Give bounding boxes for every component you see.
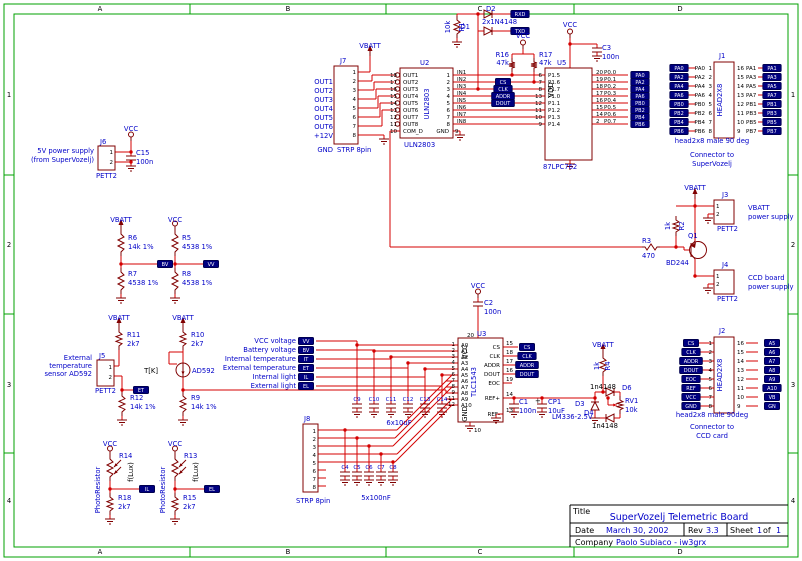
schematic-label: 3 — [709, 84, 713, 90]
schematic-label: EOC — [488, 381, 500, 387]
junction-dot — [173, 487, 176, 490]
schematic-label: CCD board — [748, 274, 785, 282]
net-label-text: PA2 — [674, 75, 683, 81]
schematic-label: CCD card — [696, 432, 728, 440]
schematic-label: 13 — [390, 108, 397, 114]
wire — [395, 405, 452, 462]
junction-dot — [372, 349, 375, 352]
schematic-label: U3 — [477, 330, 486, 338]
schematic-label: 6 — [353, 115, 357, 121]
schematic-label: 2k7 — [191, 340, 204, 348]
schematic-label: B — [286, 5, 291, 13]
schematic-label: ULN2803 — [404, 141, 435, 149]
schematic-label: 15 — [737, 350, 744, 356]
net-label-text: GN — [768, 404, 776, 410]
schematic-label: 15 — [506, 341, 513, 347]
schematic-label: 13 — [506, 408, 513, 414]
net-label-text: PA4 — [674, 84, 683, 90]
schematic-label: R4 — [604, 361, 612, 370]
schematic-label: 12 — [390, 115, 397, 121]
resistor — [172, 268, 178, 294]
schematic-label: 6 — [539, 73, 543, 79]
schematic-label: VBATT — [172, 314, 194, 322]
schematic-label: 8 — [447, 122, 451, 128]
schematic-label: C — [478, 548, 483, 556]
schematic-label: 15 — [596, 105, 603, 111]
junction-dot — [129, 150, 132, 153]
schematic-label: C13 — [420, 397, 431, 403]
schematic-label: PA0 — [695, 66, 706, 72]
junction-dot — [120, 388, 123, 391]
schematic-label: 17 — [390, 80, 397, 86]
schematic-label: IN2 — [457, 77, 466, 83]
net-label-text: A10 — [767, 386, 777, 392]
sheet-total: 1 — [776, 526, 781, 535]
schematic-label: OUT6 — [314, 123, 333, 131]
schematic-label: C5 — [353, 465, 361, 471]
schematic-label: U2 — [420, 59, 429, 67]
schematic-label: VBATT — [592, 341, 614, 349]
schematic-label: P0.6 — [604, 112, 617, 118]
schematic-label: 17 — [506, 359, 513, 365]
schematic-label: J3 — [721, 191, 728, 199]
schematic-label: 1 — [709, 341, 713, 347]
schematic-label: + — [535, 397, 541, 405]
schematic-label: PETT2 — [96, 172, 117, 180]
schematic-label: 100n — [136, 158, 153, 166]
schematic-label: 1k — [664, 222, 672, 230]
net-label-text: DOUT — [496, 101, 511, 107]
wire — [393, 387, 452, 446]
resistor — [617, 396, 623, 414]
schematic-label: D4 — [584, 409, 594, 417]
schematic-label: 6 — [709, 111, 713, 117]
schematic-label: 10k — [444, 21, 452, 34]
diode-d4 — [606, 414, 614, 422]
schematic-label: External light — [251, 382, 297, 390]
schematic-label: P0.4 — [604, 98, 617, 104]
schematic-label: J6 — [99, 138, 106, 146]
date-label: Date — [575, 526, 594, 535]
schematic-label: C6 — [365, 465, 373, 471]
schematic-canvas: Title SuperVozelj Telemetric Board Date … — [0, 0, 802, 561]
net-label-text: CS — [688, 341, 695, 347]
schematic-label: VCC — [168, 440, 182, 448]
schematic-label: PB1 — [746, 102, 757, 108]
schematic-label: R1 — [458, 22, 466, 31]
schematic-label: CS — [493, 345, 501, 351]
junction-dot — [173, 262, 176, 265]
net-label-text: ADDR — [684, 359, 699, 365]
schematic-label: f(Lux) — [127, 462, 135, 482]
schematic-label: 6 — [447, 108, 451, 114]
net-label-text: PB5 — [767, 120, 777, 126]
schematic-label: P1.4 — [548, 122, 561, 128]
schematic-label: PA7 — [746, 93, 757, 99]
schematic-label: OUT3 — [314, 96, 333, 104]
schematic-label: A — [98, 5, 103, 13]
net-label-text: VV — [208, 262, 215, 268]
net-label-text: PB4 — [674, 120, 684, 126]
schematic-label: 10 — [737, 120, 744, 126]
schematic-label: 3 — [7, 381, 11, 389]
schematic-label: J8 — [303, 415, 310, 423]
schematic-label: 4 — [447, 94, 451, 100]
schematic-label: 3 — [791, 381, 795, 389]
title-label: Title — [572, 507, 590, 516]
schematic-label: 1 — [709, 66, 713, 72]
schematic-label: 19 — [506, 377, 513, 383]
schematic-label: PA1 — [746, 66, 756, 72]
junction-dot — [119, 262, 122, 265]
net-label-text: PA5 — [767, 84, 776, 90]
net-label-text: PA3 — [767, 75, 776, 81]
net-label-text: A8 — [769, 368, 776, 374]
schematic-label: A — [98, 548, 103, 556]
schematic-label: U5 — [557, 59, 566, 67]
schematic-label: R15 — [183, 494, 196, 502]
junction-dot — [129, 160, 132, 163]
schematic-label: 2 — [716, 212, 720, 218]
schematic-label: 4538 1% — [182, 279, 213, 287]
schematic-label: 18 — [596, 84, 603, 90]
arrow-head — [181, 371, 184, 375]
schematic-label: VBATT — [110, 216, 132, 224]
schematic-label: R9 — [191, 394, 200, 402]
schematic-label: J5 — [98, 352, 105, 360]
schematic-label: PA6 — [695, 93, 706, 99]
schematic-label: 1 — [716, 274, 720, 280]
schematic-label: CLK — [489, 354, 500, 360]
junction-dot — [568, 42, 571, 45]
schematic-label: 10k — [625, 406, 638, 414]
schematic-label: f(Lux) — [192, 462, 200, 482]
schematic-label: 20 — [596, 70, 603, 76]
company-label: Company — [575, 538, 613, 547]
sheet-number: 1 — [757, 526, 762, 535]
junction-dot — [391, 460, 394, 463]
junction-dot — [440, 373, 443, 376]
schematic-label: 4 — [313, 453, 317, 459]
schematic-label: OUT6 — [403, 108, 419, 114]
resistor — [172, 493, 178, 515]
schematic-label: Internal light — [253, 373, 297, 381]
schematic-label: C14 — [437, 397, 448, 403]
schematic-label: (from SuperVozelj) — [31, 156, 94, 164]
schematic-label: PETT2 — [717, 225, 738, 233]
schematic-label: 14k 1% — [128, 243, 154, 251]
schematic-label: 11 — [737, 111, 744, 117]
schematic-label: VBATT — [748, 204, 770, 212]
net-label-text: A6 — [769, 350, 776, 356]
net-label-text: PA7 — [767, 93, 776, 99]
schematic-label: 20 — [467, 333, 474, 339]
schematic-label: 15 — [390, 94, 397, 100]
schematic-label: Internal temperature — [225, 355, 296, 363]
resistor — [172, 230, 178, 256]
company-value: Paolo Subiaco - iw3grx — [616, 538, 707, 547]
schematic-label: 16 — [506, 368, 513, 374]
schematic-label: power supply — [748, 283, 794, 291]
connector-j5 — [97, 360, 114, 386]
net-label-text: PB7 — [767, 129, 777, 135]
schematic-label: J7 — [339, 57, 346, 65]
schematic-label: 17 — [596, 91, 603, 97]
net-label-text: REF — [686, 386, 696, 392]
schematic-label: 5 — [709, 377, 713, 383]
schematic-label: PA3 — [746, 75, 757, 81]
schematic-label: CP1 — [548, 398, 561, 406]
schematic-label: 4 — [709, 368, 713, 374]
junction-dot — [108, 487, 111, 490]
net-label-text: PB6 — [635, 122, 645, 128]
schematic-label: 3 — [313, 445, 317, 451]
schematic-label: 8 — [313, 485, 317, 491]
schematic-label: B — [286, 548, 291, 556]
schematic-label: 9 — [737, 404, 741, 410]
schematic-label: 1n4148 — [592, 422, 618, 430]
schematic-label: OUT7 — [403, 115, 419, 121]
junction-dot — [693, 274, 696, 277]
schematic-label: PB3 — [746, 111, 757, 117]
title-block: Title SuperVozelj Telemetric Board Date … — [570, 505, 788, 547]
schematic-label: IN8 — [457, 119, 467, 125]
schematic-label: D — [677, 548, 682, 556]
schematic-label: R13 — [184, 452, 197, 460]
schematic-label: 14k 1% — [191, 403, 217, 411]
schematic-label: R16 — [496, 51, 509, 59]
schematic-label: 18 — [390, 73, 397, 79]
schematic-label: OUT8 — [403, 122, 419, 128]
schematic-label: 14k 1% — [130, 403, 156, 411]
schematic-label: OUT5 — [314, 114, 333, 122]
schematic-label: 4 — [7, 497, 11, 505]
schematic-label: VBATT — [684, 184, 706, 192]
schematic-label: 10 — [390, 129, 397, 135]
schematic-label: 3 — [447, 87, 451, 93]
schematic-label: R11 — [127, 331, 140, 339]
schematic-label: 13 — [737, 368, 744, 374]
schematic-label: 1 — [791, 91, 795, 99]
schematic-label: 4538 1% — [182, 243, 213, 251]
schematic-label: P1.6 — [548, 80, 561, 86]
schematic-label: IN7 — [457, 112, 467, 118]
schematic-label: C9 — [353, 397, 361, 403]
schematic-label: 3 — [709, 359, 713, 365]
schematic-label: 1 — [109, 365, 113, 371]
schematic-label: D6 — [622, 384, 632, 392]
net-label-text: ADDR — [520, 363, 535, 369]
schematic-label: 2 — [716, 282, 720, 288]
junction-dot — [476, 87, 479, 90]
schematic-label: power supply — [748, 213, 794, 221]
schematic-label: 5x100nF — [361, 494, 391, 502]
schematic-label: C2 — [484, 299, 493, 307]
schematic-label: P1.3 — [548, 115, 561, 121]
schematic-label: temperature — [49, 362, 92, 370]
junction-dot — [181, 388, 184, 391]
schematic-label: PETT2 — [717, 295, 738, 303]
schematic-label: +12V — [314, 132, 333, 140]
net-label-text: BV — [162, 262, 169, 268]
schematic-label: 2x1N4148 — [482, 18, 517, 26]
schematic-label: PB5 — [746, 120, 757, 126]
junction-dot — [510, 73, 513, 76]
schematic-label: 4 — [709, 93, 713, 99]
schematic-label: HEAD2X8 — [716, 359, 724, 392]
net-label-text: PB6 — [674, 129, 684, 135]
schematic-label: C11 — [386, 397, 397, 403]
schematic-label: 2 — [353, 79, 357, 85]
schematic-label: PB2 — [694, 111, 705, 117]
schematic-label: P0.7 — [604, 119, 617, 125]
schematic-label: D3 — [575, 400, 585, 408]
schematic-label: R2 — [678, 221, 686, 230]
vcc-symbol — [568, 29, 573, 34]
net-label-text: PA1 — [767, 66, 776, 72]
schematic-label: AD592 — [192, 367, 215, 375]
junction-dot — [389, 355, 392, 358]
schematic-label: PhotoResistor — [94, 467, 102, 514]
schematic-label: 7 — [539, 80, 543, 86]
schematic-label: 7 — [353, 124, 357, 130]
schematic-label: 6 — [313, 469, 317, 475]
schematic-label: C7 — [377, 465, 385, 471]
schematic-label: head2x8 male 90 deg — [675, 137, 749, 145]
schematic-label: PA2 — [695, 75, 705, 81]
schematic-label: 1 — [110, 150, 114, 156]
schematic-label: 1k — [593, 362, 601, 370]
schematic-label: 13 — [535, 94, 542, 100]
schematic-label: 19 — [596, 77, 603, 83]
schematic-label: External — [64, 354, 92, 362]
net-label-text: EOC — [686, 377, 697, 383]
schematic-label: 47k — [496, 59, 509, 67]
schematic-label: C3 — [602, 44, 611, 52]
schematic-label: OUT4 — [403, 94, 419, 100]
schematic-label: 1 — [353, 70, 357, 76]
junction-dot — [406, 361, 409, 364]
schematic-label: Connector to — [690, 423, 734, 431]
schematic-label: C15 — [136, 149, 149, 157]
schematic-label: 5 — [447, 101, 451, 107]
schematic-page: Title SuperVozelj Telemetric Board Date … — [0, 0, 802, 561]
schematic-label: 2 — [313, 437, 317, 443]
sheet-of-label: of — [763, 526, 771, 535]
net-label-text: CS — [524, 345, 531, 351]
net-label-text: EL — [303, 384, 309, 390]
schematic-label: ULN2803 — [423, 88, 431, 119]
schematic-label: IN1 — [457, 70, 466, 76]
net-label-text: CLK — [686, 350, 696, 356]
schematic-label: BD244 — [666, 259, 689, 267]
schematic-label: 8 — [539, 87, 543, 93]
schematic-label: OUT2 — [314, 87, 333, 95]
junction-dot — [379, 452, 382, 455]
schematic-label: J2 — [718, 327, 725, 335]
schematic-label: 1n4148 — [590, 383, 616, 391]
date-value: March 30, 2002 — [606, 526, 669, 535]
schematic-label: 4 — [791, 497, 795, 505]
rev-label: Rev — [688, 526, 703, 535]
schematic-label: 18 — [506, 350, 513, 356]
schematic-label: VBATT — [359, 42, 381, 50]
rev-value: 3.3 — [706, 526, 719, 535]
net-label-text: A7 — [769, 359, 776, 365]
schematic-label: TLC1543 — [470, 367, 478, 398]
schematic-label: DOUT — [484, 372, 501, 378]
schematic-label: R3 — [642, 237, 651, 245]
schematic-label: 16 — [737, 341, 744, 347]
resistor — [531, 58, 537, 72]
resistor — [107, 493, 113, 515]
schematic-label: C10 — [369, 397, 380, 403]
schematic-label: 5 — [709, 102, 713, 108]
schematic-label: D2 — [486, 5, 496, 13]
schematic-label: 9 — [455, 129, 459, 135]
schematic-label: 470 — [642, 252, 655, 260]
schematic-label: GND — [317, 146, 333, 154]
schematic-label: 2k7 — [118, 503, 131, 511]
junction-dot — [355, 343, 358, 346]
schematic-label: OUT2 — [403, 80, 418, 86]
diode-d1 — [484, 27, 492, 35]
schematic-label: 2 — [109, 375, 113, 381]
vcc-symbol — [521, 40, 526, 45]
schematic-label: 1 — [716, 204, 720, 210]
schematic-label: 5 — [353, 106, 357, 112]
schematic-label: 7 — [447, 115, 451, 121]
schematic-label: 12 — [737, 377, 744, 383]
schematic-label: 16 — [737, 66, 744, 72]
schematic-label: OUT3 — [403, 87, 419, 93]
schematic-label: 9 — [539, 122, 543, 128]
schematic-label: 10 — [474, 428, 481, 434]
schematic-label: R5 — [182, 234, 191, 242]
schematic-label: A10 — [461, 403, 472, 409]
junction-dot — [593, 396, 596, 399]
net-label-text: PB2 — [674, 111, 684, 117]
schematic-label: PA5 — [746, 84, 757, 90]
schematic-label: 14 — [596, 112, 603, 118]
schematic-label: 1 — [447, 73, 451, 79]
schematic-label: J4 — [721, 261, 728, 269]
schematic-label: C1 — [519, 398, 528, 406]
schematic-label: IN3 — [457, 84, 467, 90]
schematic-label: PhotoResistor — [159, 467, 167, 514]
schematic-label: VCC — [516, 32, 530, 40]
schematic-label: 15 — [737, 75, 744, 81]
schematic-label: head2x8 male 90deg — [676, 411, 748, 419]
resistor — [509, 58, 515, 72]
schematic-label: 14 — [506, 392, 513, 398]
schematic-label: STRP 8pin — [296, 497, 330, 505]
schematic-label: R12 — [130, 394, 143, 402]
schematic-label: 3 — [353, 88, 357, 94]
schematic-label: 2 — [596, 119, 600, 125]
junction-dot — [343, 428, 346, 431]
resistor — [180, 328, 186, 350]
net-label-text: DOUT — [684, 368, 699, 374]
schematic-label: PETT2 — [95, 387, 116, 395]
net-label-text: VV — [303, 339, 310, 345]
sheet-label: Sheet — [730, 526, 753, 535]
resistor — [180, 392, 186, 416]
net-label-text: A9 — [769, 377, 776, 383]
net-label-text: PB1 — [767, 102, 777, 108]
net-label-text: BV — [303, 348, 310, 354]
net-label-text: A5 — [769, 341, 776, 347]
